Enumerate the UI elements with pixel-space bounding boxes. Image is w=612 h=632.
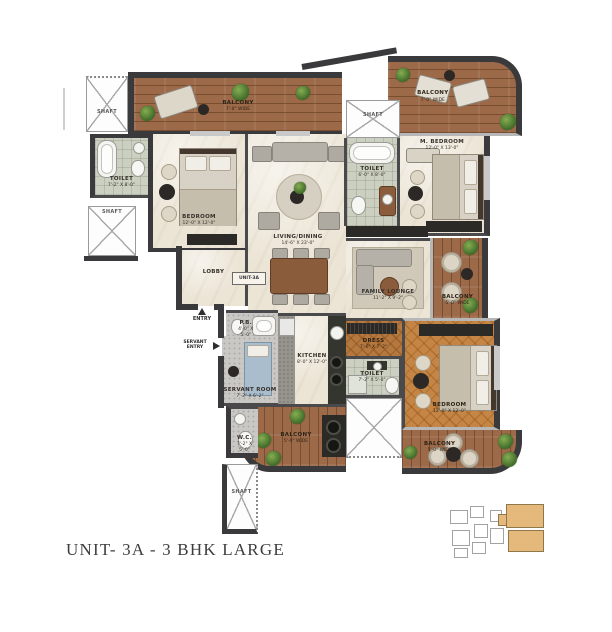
side-table xyxy=(444,70,455,81)
pouf xyxy=(410,204,425,219)
window xyxy=(494,346,500,390)
powder-bath: P.B. 4'-0" X 5'-0" xyxy=(226,310,278,338)
living-dining: LIVING/DINING 14'-6" X 23'-0" xyxy=(248,134,348,316)
entry-marker: ENTRY xyxy=(188,308,216,322)
room-label: SHAFT xyxy=(347,112,399,119)
room-label: SHAFT xyxy=(227,489,256,496)
double-bed xyxy=(432,154,484,220)
bedroom-left: BEDROOM 12'-0" X 12'-0" xyxy=(148,134,248,252)
plant xyxy=(500,114,516,130)
dress: DRESS 7'-0" X 7'-2" xyxy=(342,318,402,356)
side-table xyxy=(408,186,423,201)
toilet-master: TOILET 6'-0" X 8'-0" xyxy=(344,138,400,226)
window xyxy=(484,156,490,200)
room-label: KITCHEN 8'-0" X 12'-0" xyxy=(278,353,346,366)
room-label: M. BEDROOM 12'-0" X 13'-0" xyxy=(400,139,484,152)
wall-segment xyxy=(84,256,138,261)
room-label: TOILET 7'-2" X 5'-0" xyxy=(345,371,399,384)
bedroom-right: BEDROOM 12'-0" X 12'-0" xyxy=(402,318,500,430)
sink xyxy=(330,326,344,340)
plant xyxy=(463,240,478,255)
reference-tick xyxy=(63,88,65,130)
key-plan-highlight xyxy=(508,530,544,552)
armchair xyxy=(258,212,280,230)
dresser xyxy=(419,324,493,336)
wall-segment xyxy=(176,246,182,310)
room-label: TOILET 7'-2" X 8'-0" xyxy=(95,176,148,189)
wc: W.C. 7'-2" X 5'-0" xyxy=(226,406,258,458)
key-plan xyxy=(450,498,548,560)
plant xyxy=(296,86,310,100)
balcony-right: BALCONY 5'-0" WIDE xyxy=(430,238,488,318)
shaft-center: SHAFT xyxy=(346,100,400,138)
toilet-seat xyxy=(351,196,366,215)
armchair xyxy=(318,212,340,230)
room-label: LIVING/DINING 14'-6" X 23'-0" xyxy=(248,234,348,247)
plant xyxy=(290,409,305,424)
entry-arrow-icon xyxy=(198,308,206,315)
room-label: FAMILY LOUNGE 11'-2" X 9'-2" xyxy=(346,289,430,302)
room-label: BALCONY 7'-0" WIDE xyxy=(134,100,342,113)
plant xyxy=(232,84,249,101)
balcony-top: BALCONY 7'-0" WIDE xyxy=(128,72,342,136)
toilet-left: TOILET 7'-2" X 8'-0" xyxy=(90,134,148,198)
shaft-bottom: SHAFT xyxy=(222,464,258,534)
plan-title: UNIT- 3A - 3 BHK LARGE xyxy=(66,540,285,560)
room-label: SHAFT xyxy=(89,209,135,216)
wardrobe xyxy=(347,323,397,334)
shaft-bottom-center xyxy=(346,398,402,458)
hob-burner xyxy=(330,373,343,386)
floor-plan-canvas: SHAFT BALCONY 7'-0" WIDE BALCONY 7'-0" W… xyxy=(0,0,612,632)
sink xyxy=(382,194,393,205)
room-label: W.C. 7'-2" X 5'-0" xyxy=(231,435,258,454)
balcony-top-right: BALCONY 7'-0" WIDE xyxy=(388,56,522,136)
dresser xyxy=(187,234,237,245)
side-table xyxy=(413,373,429,389)
servant-room: SERVANT ROOM 7'-2" X 6'-2" xyxy=(222,336,278,406)
sink xyxy=(373,362,382,371)
sink xyxy=(133,142,145,154)
stool xyxy=(228,366,239,377)
side-table xyxy=(159,184,175,200)
dresser xyxy=(426,221,482,232)
servant-entry-arrow-icon xyxy=(213,342,220,350)
room-label: TOILET 6'-0" X 8'-0" xyxy=(347,166,397,179)
pouf xyxy=(410,170,425,185)
toilet-bottom: TOILET 7'-2" X 5'-0" xyxy=(342,356,402,398)
balcony-bottom-right: BALCONY 5'-0" WIDE xyxy=(402,430,522,474)
servant-entry-marker: SERVANT ENTRY xyxy=(178,340,212,351)
room-label: BEDROOM 12'-0" X 12'-0" xyxy=(153,214,245,227)
master-bedroom: M. BEDROOM 12'-0" X 13'-0" xyxy=(400,136,490,236)
wall-diagonal xyxy=(301,47,397,70)
room-label: BEDROOM 12'-0" X 12'-0" xyxy=(405,402,494,415)
room-label: DRESS 7'-0" X 7'-2" xyxy=(345,338,402,351)
room-label: SERVANT ROOM 7'-2" X 6'-2" xyxy=(222,387,278,400)
plant xyxy=(502,452,517,467)
refrigerator xyxy=(279,318,295,336)
dining-chair xyxy=(272,294,288,305)
dining-chair xyxy=(293,294,309,305)
family-lounge: FAMILY LOUNGE 11'-2" X 9'-2" xyxy=(346,238,430,318)
room-label: SHAFT xyxy=(87,109,127,116)
wall-segment xyxy=(218,356,224,408)
key-plan-highlight xyxy=(506,504,544,528)
room-label: BALCONY 5'-0" WIDE xyxy=(433,294,482,307)
unit-tag: UNIT-3A xyxy=(232,272,266,285)
armchair xyxy=(252,146,272,162)
kitchen: KITCHEN 8'-0" X 12'-0" xyxy=(278,316,346,404)
dining-chair xyxy=(314,294,330,305)
shaft-left: SHAFT xyxy=(88,206,136,256)
room-label: BALCONY 5'-0" WIDE xyxy=(246,432,346,445)
wall-segment xyxy=(218,308,224,338)
sofa xyxy=(272,142,328,162)
side-table xyxy=(461,268,473,280)
pouf xyxy=(415,355,431,371)
plant xyxy=(396,68,410,82)
tv-console xyxy=(346,226,428,237)
pouf xyxy=(161,164,177,180)
plant xyxy=(266,451,281,466)
dining-table xyxy=(270,258,328,294)
shaft-top-left: SHAFT xyxy=(86,76,128,132)
window xyxy=(276,131,310,136)
toilet-seat xyxy=(131,160,145,177)
sink xyxy=(234,413,246,425)
round-chair xyxy=(441,252,462,273)
window xyxy=(190,131,230,136)
